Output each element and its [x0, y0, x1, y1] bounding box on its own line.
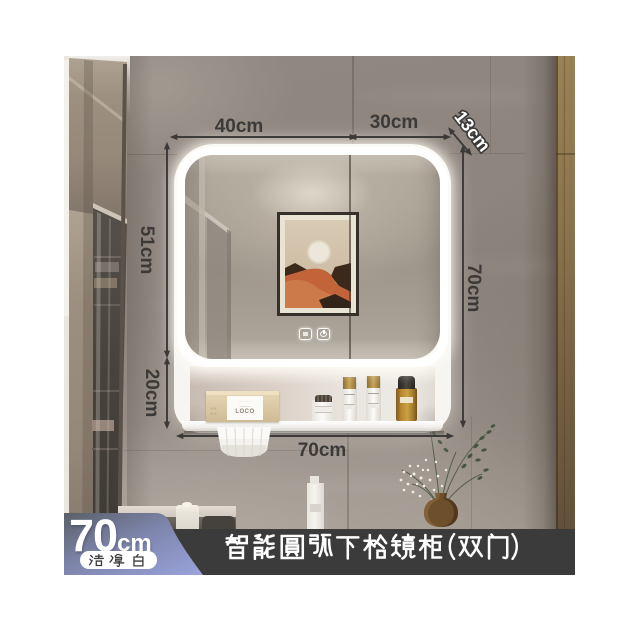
- svg-text:13cm: 13cm: [450, 107, 494, 156]
